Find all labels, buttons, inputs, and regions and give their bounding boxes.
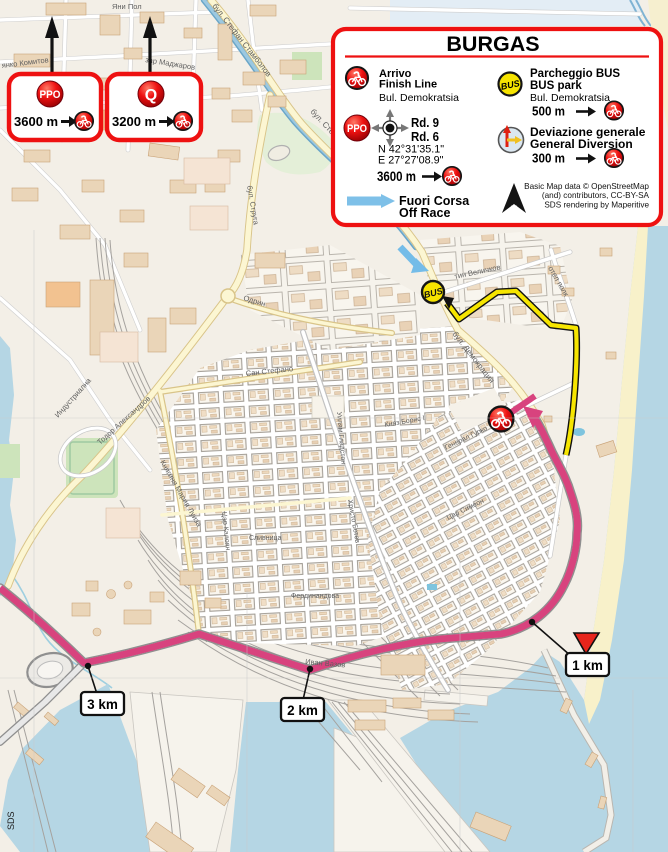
svg-text:Яни Пол: Яни Пол (112, 2, 142, 11)
svg-text:Фердинандова: Фердинандова (291, 593, 339, 600)
svg-text:PPO: PPO (40, 89, 61, 101)
svg-text:Bul. Demokratsia: Bul. Demokratsia (530, 92, 610, 104)
svg-text:SDS rendering by Maperitive: SDS rendering by Maperitive (544, 201, 649, 210)
svg-text:3600 m: 3600 m (14, 114, 58, 129)
svg-text:Rd. 6: Rd. 6 (411, 129, 439, 144)
svg-text:3 km: 3 km (87, 697, 118, 712)
svg-text:500 m: 500 m (532, 104, 565, 119)
svg-text:PPO: PPO (347, 123, 367, 135)
svg-text:SDS: SDS (6, 811, 16, 830)
svg-text:Rd. 9: Rd. 9 (411, 115, 439, 130)
svg-text:BUS park: BUS park (530, 80, 582, 92)
svg-text:BURGAS: BURGAS (446, 32, 539, 56)
svg-text:Basic Map data © OpenStreetMap: Basic Map data © OpenStreetMap (524, 182, 649, 191)
svg-text:2 km: 2 km (287, 703, 318, 718)
svg-text:Q: Q (145, 87, 157, 104)
svg-text:Сливница: Сливница (249, 535, 282, 542)
svg-text:3200 m: 3200 m (112, 114, 156, 129)
svg-text:300 m: 300 m (532, 151, 565, 166)
svg-text:N: N (511, 204, 518, 214)
svg-text:(and) contributors, CC-BY-SA: (and) contributors, CC-BY-SA (542, 191, 650, 200)
svg-text:Bul. Demokratsia: Bul. Demokratsia (379, 92, 459, 104)
svg-text:3600 m: 3600 m (377, 169, 416, 184)
svg-text:1 km: 1 km (572, 658, 603, 673)
svg-text:Off Race: Off Race (399, 206, 450, 220)
svg-text:Parcheggio BUS: Parcheggio BUS (530, 68, 620, 80)
svg-text:Finish Line: Finish Line (379, 79, 437, 91)
svg-text:E 27°27'08.9": E 27°27'08.9" (378, 155, 444, 167)
